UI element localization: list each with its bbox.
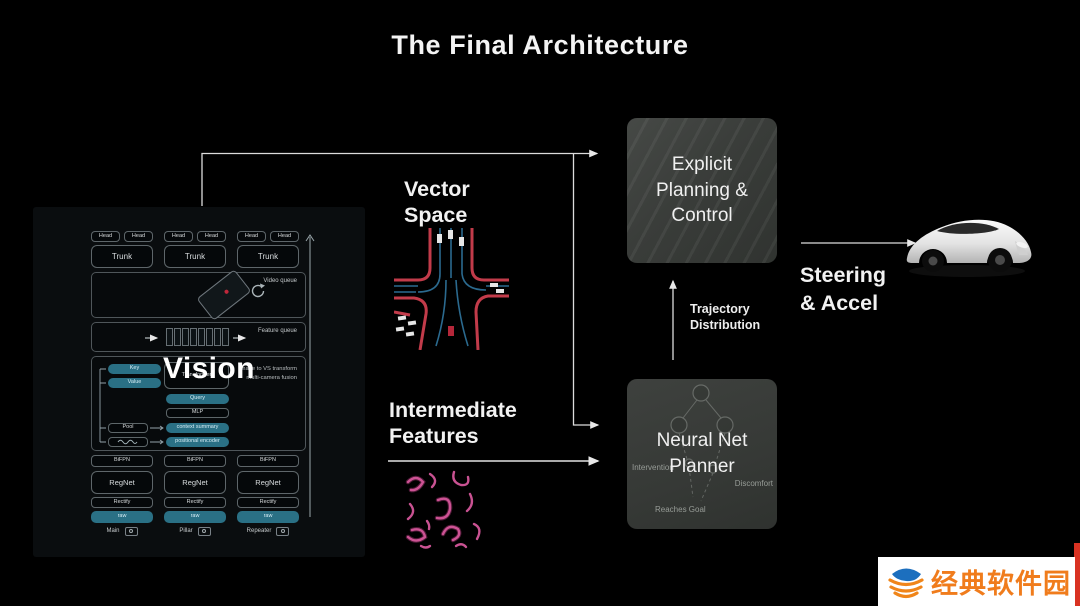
video-queue-panel: Video queue xyxy=(91,272,306,318)
camera-label: Pillar xyxy=(179,528,192,534)
pool-box: Pool xyxy=(108,423,148,433)
watermark-banner: 经典软件园 xyxy=(878,557,1075,606)
rectify-box: Rectify xyxy=(91,497,153,508)
head-box: Head xyxy=(197,231,226,242)
watermark-site-name: 经典软件园 xyxy=(931,562,1071,601)
head-box: Head xyxy=(164,231,193,242)
tesla-car-image xyxy=(897,203,1037,283)
video-queue-label: Video queue xyxy=(263,278,297,284)
vision-label: Vision xyxy=(163,352,255,386)
bifpn-box: BiFPN xyxy=(91,455,153,467)
mlp-box: MLP xyxy=(166,408,229,418)
reaches-goal-label: Reaches Goal xyxy=(655,505,706,516)
vector-space-label: Vector Space xyxy=(404,176,470,228)
watermark-globe-logo xyxy=(885,561,927,603)
red-dot xyxy=(224,289,230,295)
explicit-planning-label: Explicit Planning & Control xyxy=(656,152,748,229)
arrow-out-of-queue-icon xyxy=(232,334,250,342)
rectify-box: Rectify xyxy=(164,497,226,508)
regnet-box: RegNet xyxy=(91,471,153,494)
feature-queue-label: Feature queue xyxy=(258,328,297,334)
neural-net-planner-label: Neural Net Planner xyxy=(657,428,748,479)
camera-row: Pillar xyxy=(164,525,226,537)
feature-queue-panel: Feature queue xyxy=(91,322,306,352)
raw-box: raw xyxy=(91,511,153,523)
feature-queue-stack xyxy=(166,328,229,346)
value-box: Value xyxy=(108,378,161,388)
slide: The Final Architecture Head Head Trunk B… xyxy=(0,0,1080,606)
head-box: Head xyxy=(91,231,120,242)
bifpn-box: BiFPN xyxy=(237,455,299,467)
neural-net-planner-box: Intervention Discomfort Reaches Goal Neu… xyxy=(627,379,777,529)
intermediate-features-label: Intermediate Features xyxy=(389,397,517,449)
trunk-box: Trunk xyxy=(91,245,153,268)
trajectory-distribution-label: Trajectory Distribution xyxy=(690,301,760,334)
sine-wave-icon xyxy=(117,438,139,446)
camera-icon xyxy=(198,527,211,536)
upward-flow-arrow xyxy=(303,227,317,519)
raw-box: raw xyxy=(237,511,299,523)
explicit-planning-box: Explicit Planning & Control xyxy=(627,118,777,263)
head-box: Head xyxy=(124,231,153,242)
refresh-icon xyxy=(248,281,268,301)
camera-icon xyxy=(276,527,289,536)
key-box: Key xyxy=(108,364,161,374)
regnet-box: RegNet xyxy=(237,471,299,494)
bifpn-box: BiFPN xyxy=(164,455,226,467)
trunk-box: Trunk xyxy=(237,245,299,268)
intermediate-features-visualization xyxy=(396,466,501,554)
query-box: Query xyxy=(166,394,229,404)
video-frame-card xyxy=(196,269,251,321)
head-box: Head xyxy=(270,231,299,242)
trunk-box: Trunk xyxy=(164,245,226,268)
ego-vehicle-mark xyxy=(448,326,454,336)
camera-row: Main xyxy=(91,525,153,537)
context-summary-box: context summary xyxy=(166,423,229,433)
camera-row: Repeater xyxy=(237,525,299,537)
steering-accel-label: Steering & Accel xyxy=(800,262,886,317)
regnet-box: RegNet xyxy=(164,471,226,494)
sine-box xyxy=(108,437,148,447)
vector-space-visualization xyxy=(394,228,509,350)
head-box: Head xyxy=(237,231,266,242)
raw-box: raw xyxy=(164,511,226,523)
rectify-box: Rectify xyxy=(237,497,299,508)
camera-label: Repeater xyxy=(247,528,272,534)
camera-label: Main xyxy=(106,528,119,534)
discomfort-label: Discomfort xyxy=(735,479,773,490)
positional-encoder-box: positional encoder xyxy=(166,437,229,447)
camera-icon xyxy=(125,527,138,536)
arrow-into-queue-icon xyxy=(144,334,162,342)
